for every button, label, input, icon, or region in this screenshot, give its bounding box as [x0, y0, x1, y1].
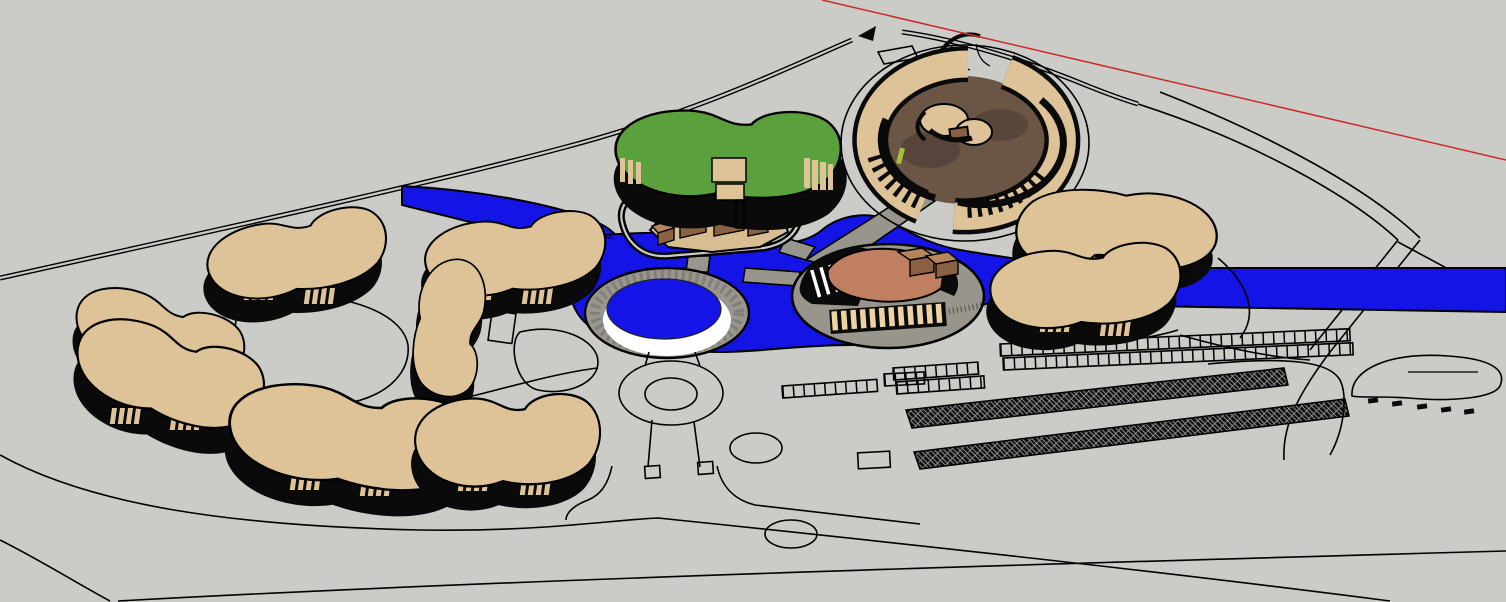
model-stage [0, 0, 1506, 602]
central-pool [585, 268, 749, 358]
green-roof-building [614, 110, 847, 230]
island-pavilion [792, 244, 985, 348]
model-viewport[interactable] [0, 0, 1506, 602]
pool-water [607, 279, 721, 339]
plaza-bridge [743, 268, 800, 286]
